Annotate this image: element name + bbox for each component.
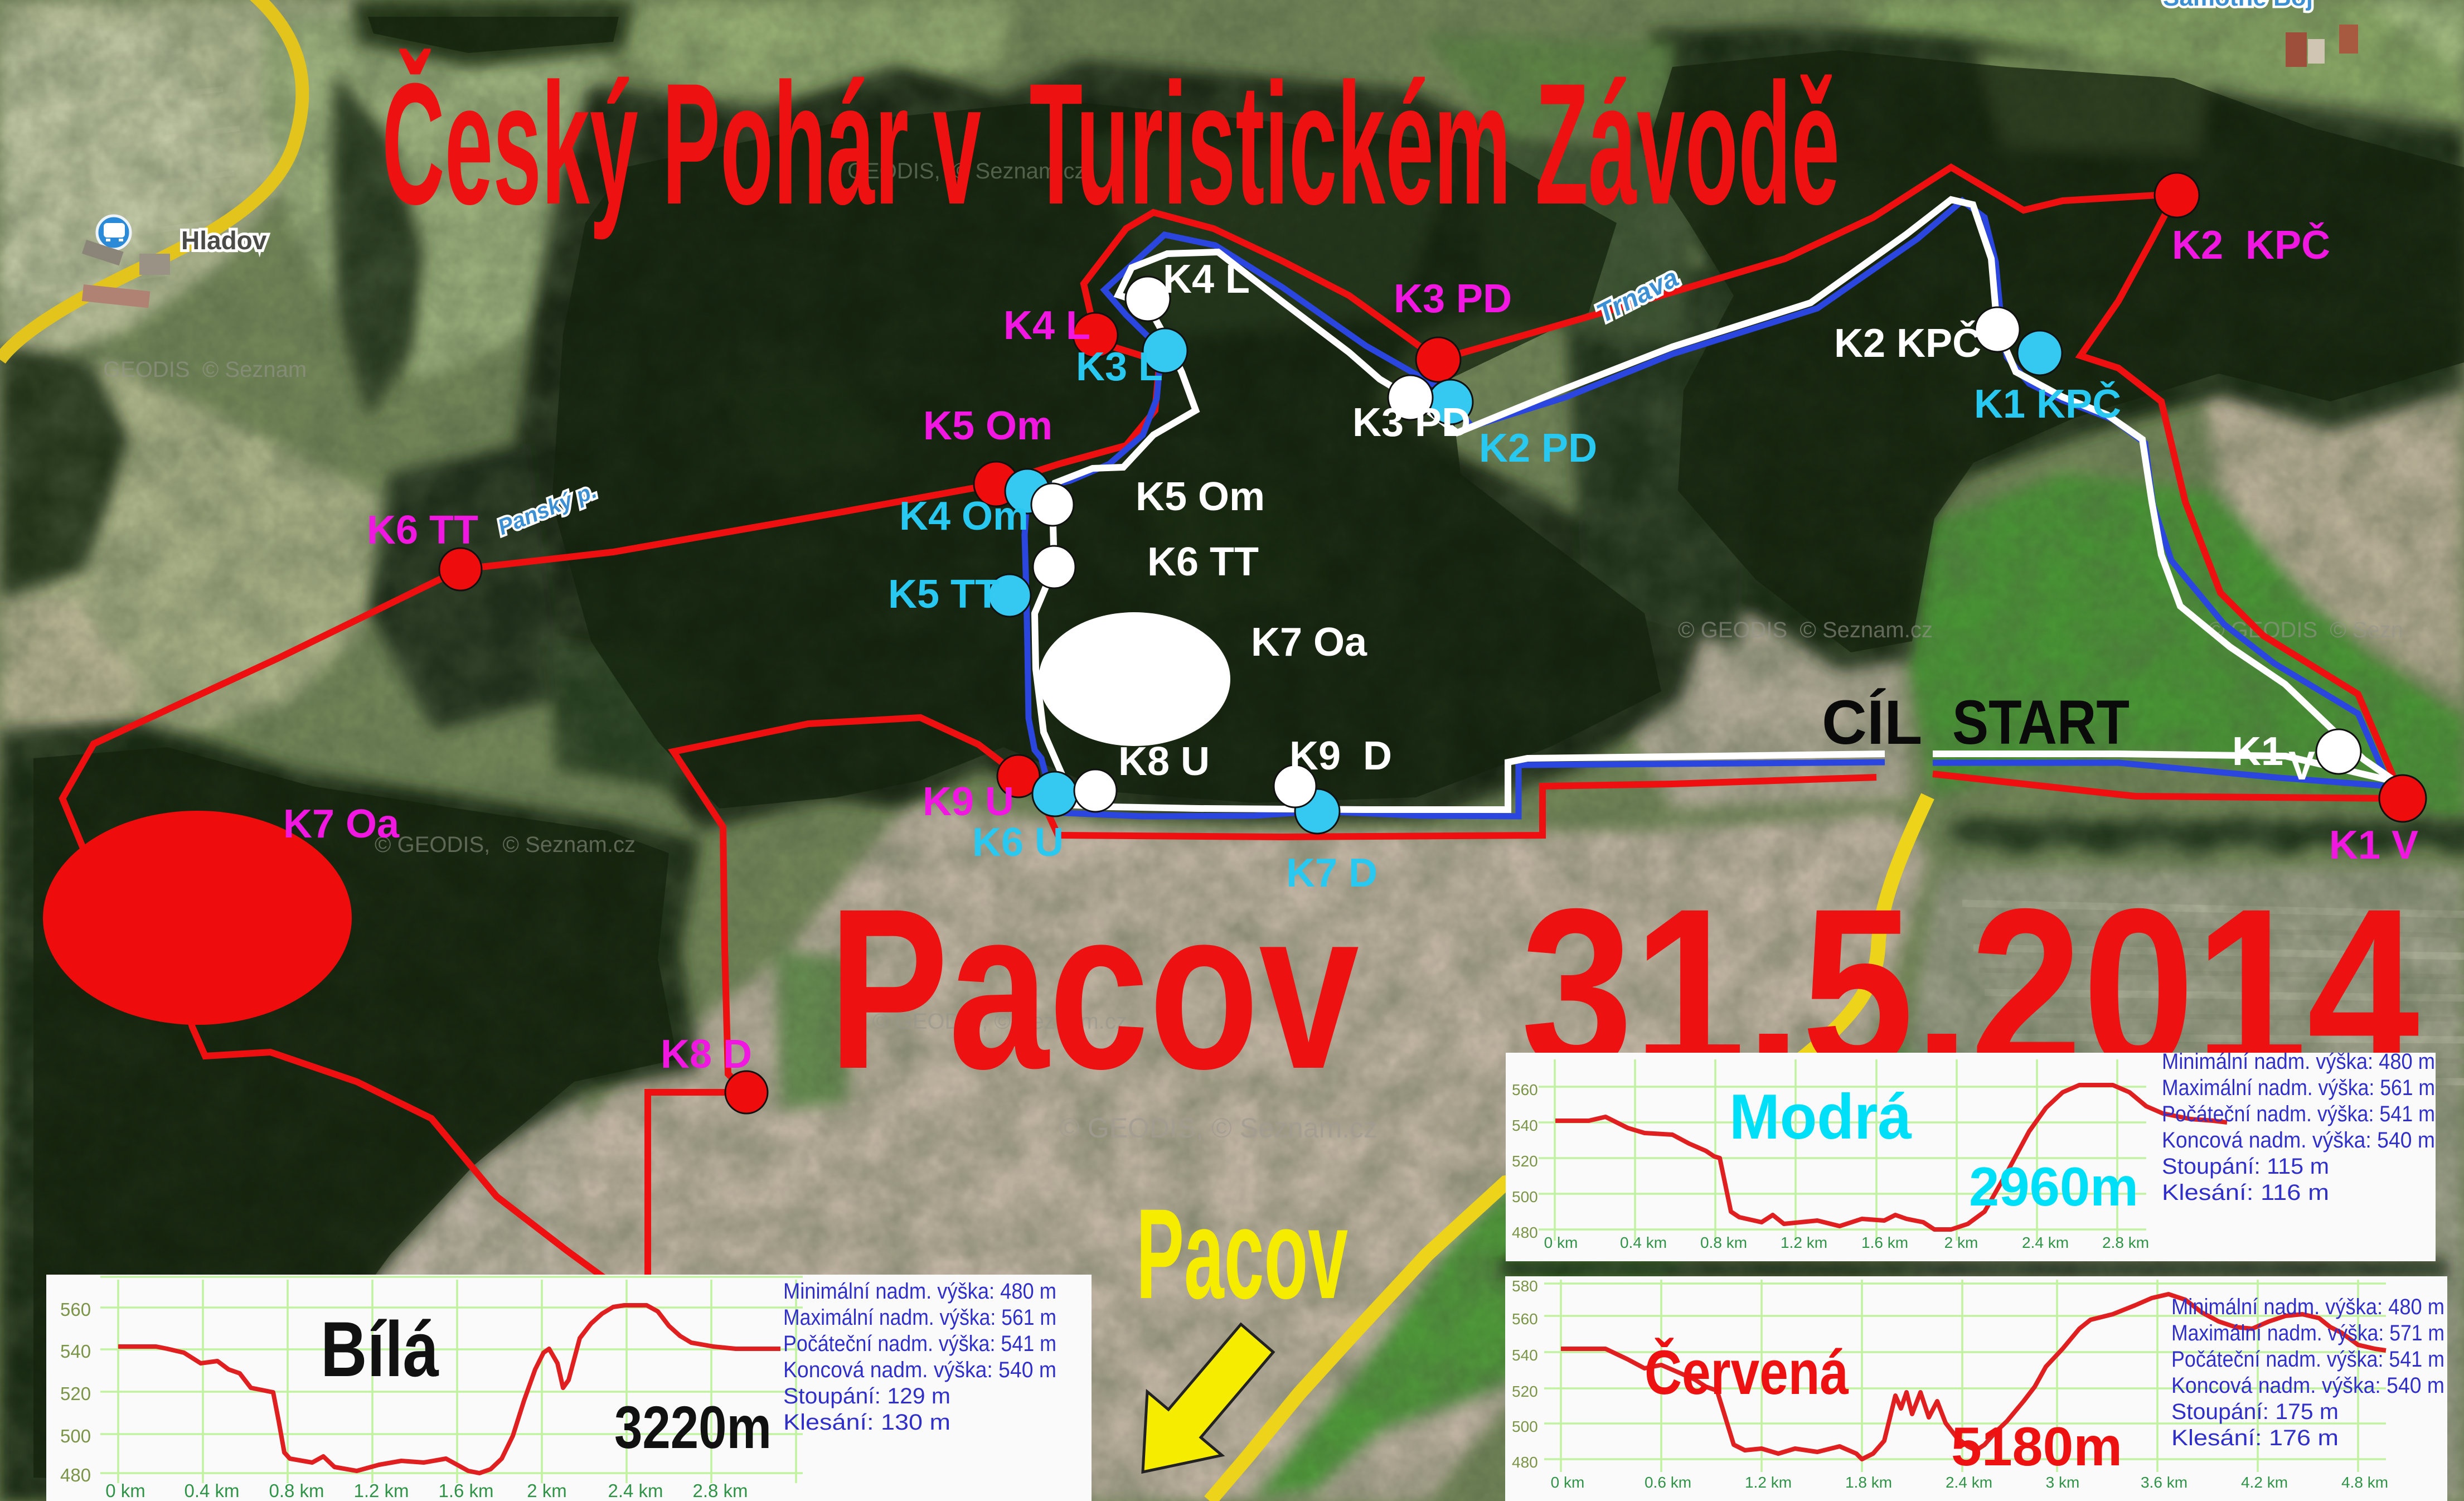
svg-text:Hladov: Hladov — [181, 226, 267, 255]
svg-text:Pacov: Pacov — [1136, 1182, 1348, 1325]
svg-text:K7 Oa: K7 Oa — [283, 802, 400, 846]
svg-text:K7 Oa: K7 Oa — [1251, 620, 1367, 665]
svg-text:CÍL: CÍL — [1822, 687, 1922, 757]
svg-text:START: START — [1952, 687, 2130, 757]
svg-text:K6 TT: K6 TT — [367, 508, 478, 553]
svg-text:K5 Om: K5 Om — [1136, 474, 1265, 519]
svg-text:Samotné Boj: Samotné Boj — [2163, 0, 2313, 11]
svg-text:1.8 km: 1.8 km — [1845, 1474, 1892, 1491]
svg-text:1.6 km: 1.6 km — [438, 1480, 493, 1501]
svg-text:2960m: 2960m — [1969, 1156, 2138, 1217]
svg-text:K3 PD: K3 PD — [1394, 277, 1512, 321]
svg-text:3220m: 3220m — [614, 1393, 772, 1461]
svg-text:0.4 km: 0.4 km — [1620, 1234, 1667, 1251]
svg-text:0 km: 0 km — [1544, 1234, 1578, 1251]
svg-text:520: 520 — [1512, 1383, 1538, 1400]
svg-text:2 km: 2 km — [1944, 1234, 1978, 1251]
svg-text:540: 540 — [1512, 1347, 1538, 1364]
svg-text:1.2 km: 1.2 km — [1745, 1474, 1792, 1491]
svg-text:Maximální nadm. výška: 561 m: Maximální nadm. výška: 561 m — [2162, 1076, 2435, 1100]
svg-text:2 km: 2 km — [527, 1480, 567, 1501]
svg-text:520: 520 — [60, 1383, 91, 1404]
svg-text:K9 U: K9 U — [923, 779, 1014, 824]
svg-text:520: 520 — [1512, 1153, 1538, 1170]
svg-text:Pacov: Pacov — [828, 861, 1360, 1116]
svg-text:© GEODIS, © Seznam.cz: © GEODIS, © Seznam.cz — [375, 832, 636, 857]
svg-text:4.8 km: 4.8 km — [2341, 1474, 2388, 1491]
svg-text:K8 D: K8 D — [661, 1032, 752, 1077]
svg-text:0.4 km: 0.4 km — [184, 1480, 239, 1501]
svg-text:480: 480 — [1512, 1454, 1538, 1471]
svg-text:Stoupání: 115 m: Stoupání: 115 m — [2162, 1154, 2329, 1179]
svg-text:560: 560 — [1512, 1081, 1538, 1098]
svg-text:5180m: 5180m — [1951, 1416, 2122, 1477]
svg-text:500: 500 — [1512, 1188, 1538, 1205]
svg-text:Minimální nadm. výška: 480 m: Minimální nadm. výška: 480 m — [783, 1279, 1056, 1304]
svg-text:K5 TT: K5 TT — [888, 572, 1000, 617]
svg-text:480: 480 — [1512, 1224, 1538, 1241]
svg-text:Koncová nadm. výška: 540 m: Koncová nadm. výška: 540 m — [783, 1358, 1056, 1382]
svg-text:Červená: Červená — [1645, 1338, 1849, 1407]
svg-text:Koncová nadm. výška: 540 m: Koncová nadm. výška: 540 m — [2162, 1128, 2435, 1153]
svg-text:K1 KPČ: K1 KPČ — [1974, 381, 2121, 427]
svg-text:560: 560 — [1512, 1310, 1538, 1328]
svg-text:2.4 km: 2.4 km — [608, 1480, 663, 1501]
svg-text:Bílá: Bílá — [321, 1305, 439, 1393]
svg-text:K3 L: K3 L — [1076, 345, 1163, 389]
svg-text:Minimální nadm. výška: 480 m: Minimální nadm. výška: 480 m — [2171, 1295, 2444, 1319]
svg-text:1.2 km: 1.2 km — [353, 1480, 409, 1501]
svg-text:540: 540 — [1512, 1117, 1538, 1134]
svg-text:Počáteční nadm. výška: 541 m: Počáteční nadm. výška: 541 m — [2162, 1102, 2435, 1126]
svg-text:0.8 km: 0.8 km — [1700, 1234, 1747, 1251]
svg-text:Stoupání: 129 m: Stoupání: 129 m — [783, 1384, 950, 1408]
svg-text:K9 D: K9 D — [1289, 734, 1392, 778]
svg-text:560: 560 — [60, 1299, 91, 1320]
svg-text:GEODIS © Seznam: GEODIS © Seznam — [103, 357, 307, 382]
svg-text:K3 PD: K3 PD — [1352, 400, 1471, 445]
svg-text:0.8 km: 0.8 km — [269, 1480, 324, 1501]
svg-text:4.2 km: 4.2 km — [2241, 1474, 2288, 1491]
svg-text:2.8 km: 2.8 km — [2102, 1234, 2149, 1251]
svg-text:Počáteční nadm. výška: 541 m: Počáteční nadm. výška: 541 m — [783, 1331, 1056, 1356]
svg-text:Klesání: 130 m: Klesání: 130 m — [783, 1410, 950, 1435]
svg-text:Český Pohár v Turistickém Záv: Český Pohár v Turistickém Závodě — [382, 47, 1840, 241]
svg-text:Stoupání: 175 m: Stoupání: 175 m — [2171, 1400, 2339, 1424]
svg-text:K6 U: K6 U — [972, 820, 1064, 865]
svg-text:0 km: 0 km — [105, 1480, 145, 1501]
svg-text:© GEODIS © Sezn: © GEODIS © Sezn — [2208, 618, 2403, 642]
svg-text:540: 540 — [60, 1341, 91, 1362]
svg-text:500: 500 — [1512, 1418, 1538, 1435]
svg-text:Maximální nadm. výška: 571 m: Maximální nadm. výška: 571 m — [2171, 1321, 2444, 1345]
svg-text:Modrá: Modrá — [1729, 1082, 1912, 1153]
svg-text:© GEODIS © Seznam.cz: © GEODIS © Seznam.cz — [1678, 618, 1933, 642]
svg-text:K1: K1 — [2232, 729, 2283, 774]
svg-text:Koncová nadm. výška: 540 m: Koncová nadm. výška: 540 m — [2171, 1373, 2444, 1398]
svg-text:0 km: 0 km — [1551, 1474, 1585, 1491]
svg-text:1.6 km: 1.6 km — [1861, 1234, 1908, 1251]
svg-text:V: V — [2288, 744, 2315, 788]
svg-text:K4 L: K4 L — [1163, 257, 1250, 302]
svg-text:K5 Om: K5 Om — [923, 404, 1052, 448]
svg-text:1.2 km: 1.2 km — [1781, 1234, 1827, 1251]
svg-text:© GEODIS, © Seznam.cz: © GEODIS, © Seznam.cz — [1059, 1112, 1377, 1144]
svg-text:K4 Om: K4 Om — [899, 494, 1029, 539]
svg-text:3.6 km: 3.6 km — [2141, 1474, 2187, 1491]
svg-text:K2 KPČ: K2 KPČ — [2172, 222, 2330, 268]
svg-text:500: 500 — [60, 1426, 91, 1446]
svg-text:K2 PD: K2 PD — [1479, 426, 1597, 471]
svg-text:480: 480 — [60, 1465, 91, 1485]
svg-text:2.4 km: 2.4 km — [2022, 1234, 2069, 1251]
svg-text:K8 U: K8 U — [1118, 739, 1210, 784]
svg-text:0.6 km: 0.6 km — [1645, 1474, 1691, 1491]
svg-text:580: 580 — [1512, 1277, 1538, 1295]
svg-text:Klesání: 116 m: Klesání: 116 m — [2162, 1180, 2329, 1205]
svg-text:Počáteční nadm. výška: 541 m: Počáteční nadm. výška: 541 m — [2171, 1347, 2444, 1372]
svg-text:2.8 km: 2.8 km — [692, 1480, 748, 1501]
svg-text:K2 KPČ: K2 KPČ — [1834, 321, 1981, 366]
svg-text:K6 TT: K6 TT — [1147, 540, 1259, 584]
svg-text:Maximální nadm. výška: 561 m: Maximální nadm. výška: 561 m — [783, 1305, 1056, 1330]
svg-text:Klesání: 176 m: Klesání: 176 m — [2171, 1426, 2339, 1450]
svg-text:K4 L: K4 L — [1003, 303, 1090, 348]
svg-text:Minimální nadm. výška: 480 m: Minimální nadm. výška: 480 m — [2162, 1049, 2435, 1074]
